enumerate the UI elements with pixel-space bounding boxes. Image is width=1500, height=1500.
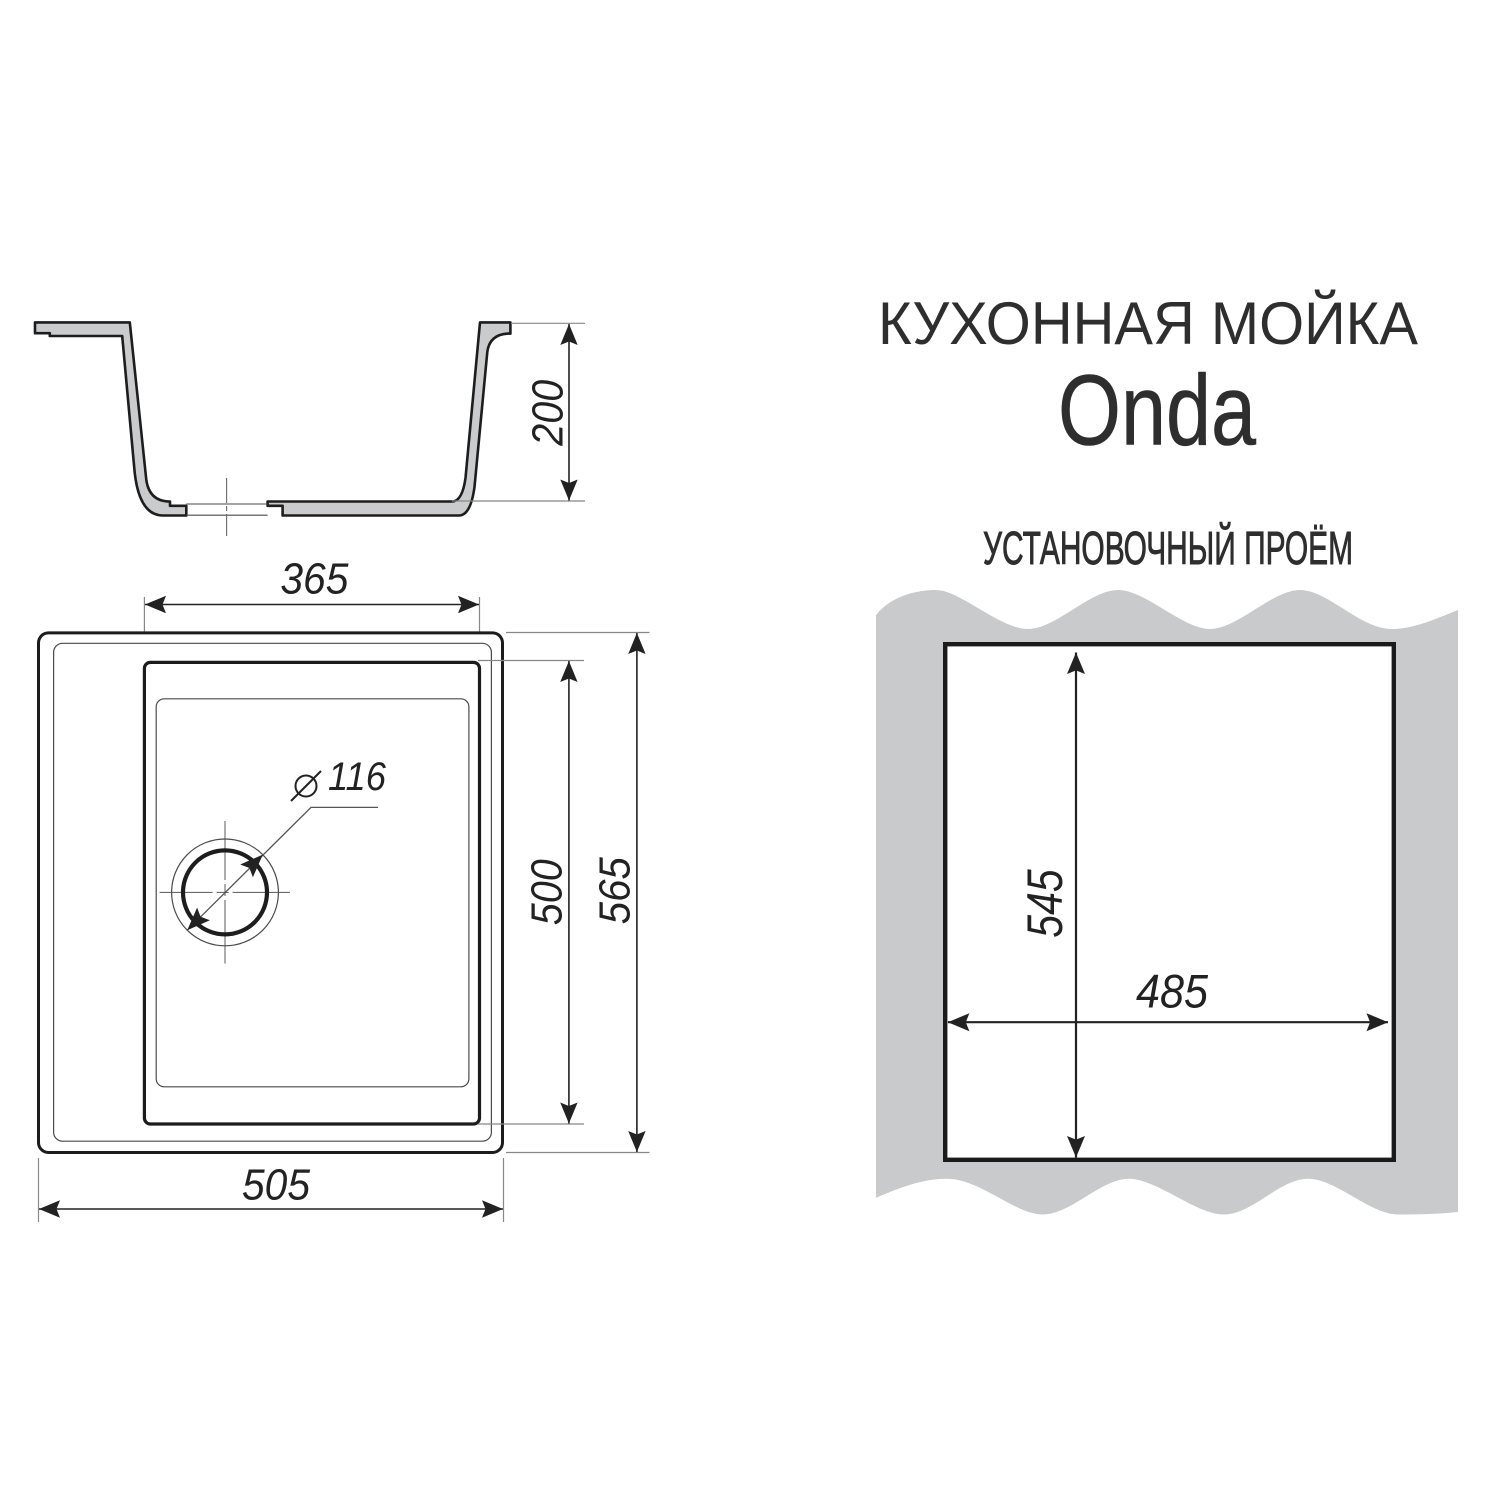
svg-text:565: 565 (591, 857, 640, 924)
svg-text:485: 485 (1136, 965, 1209, 1018)
svg-text:365: 365 (280, 555, 348, 604)
svg-text:116: 116 (328, 755, 387, 799)
svg-text:200: 200 (523, 379, 572, 446)
svg-text:УСТАНОВОЧНЫЙ ПРОЁМ: УСТАНОВОЧНЫЙ ПРОЁМ (983, 522, 1353, 574)
svg-text:КУХОННАЯ МОЙКА: КУХОННАЯ МОЙКА (878, 290, 1418, 357)
svg-text:545: 545 (1017, 869, 1073, 938)
svg-text:Onda: Onda (1058, 355, 1256, 467)
svg-text:500: 500 (523, 859, 572, 925)
svg-text:505: 505 (242, 1161, 310, 1210)
